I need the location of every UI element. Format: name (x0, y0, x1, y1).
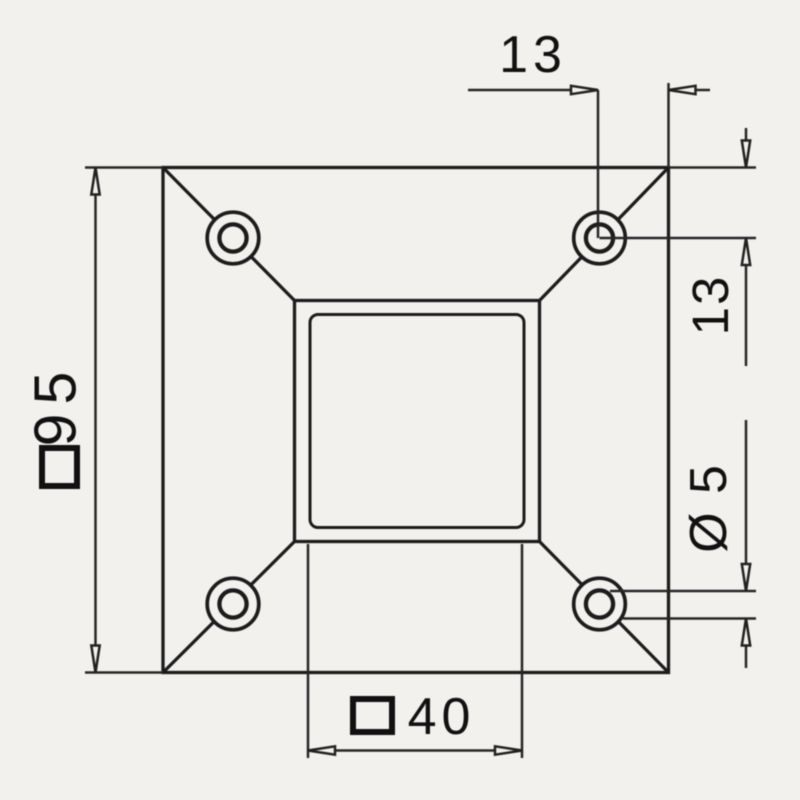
svg-text:Ø 5: Ø 5 (680, 463, 738, 553)
svg-text:13: 13 (682, 275, 739, 336)
svg-text:40: 40 (408, 688, 476, 746)
svg-text:13: 13 (499, 26, 567, 84)
svg-text:95: 95 (23, 363, 89, 447)
